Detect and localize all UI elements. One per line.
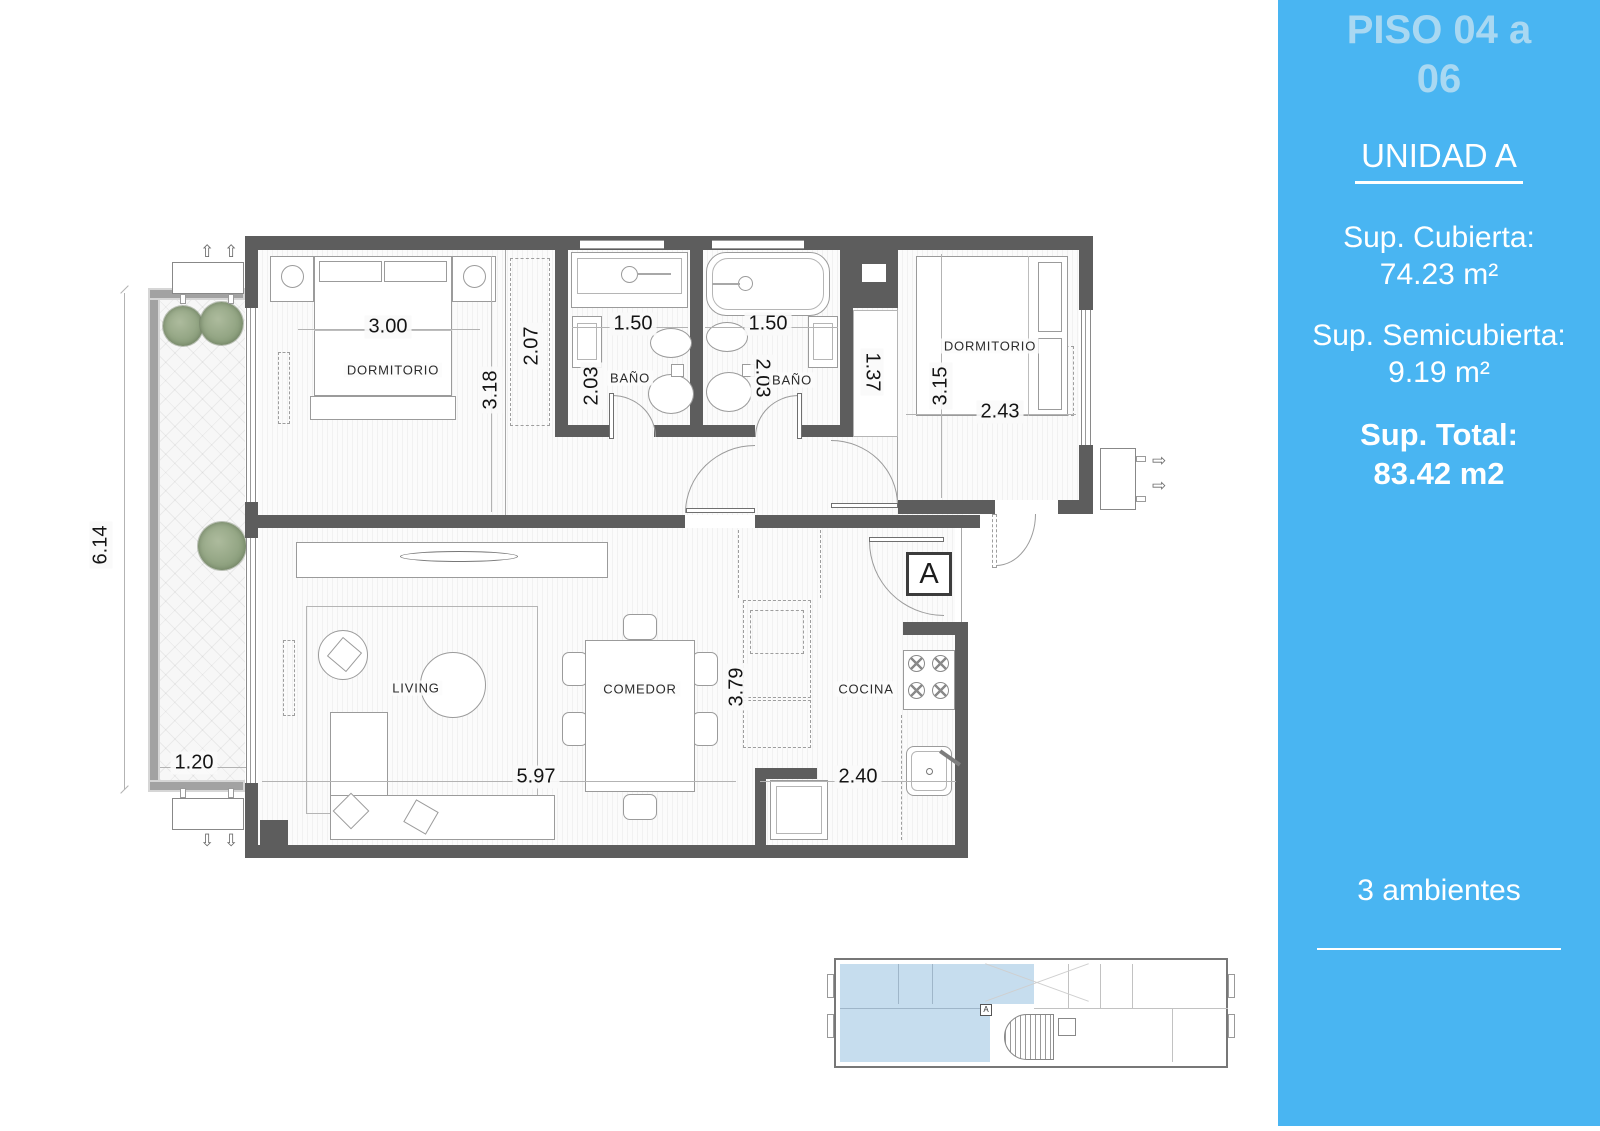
ac-leg	[1136, 456, 1146, 462]
wall-segment	[1079, 250, 1093, 310]
semicovered-surface: Sup. Semicubierta: 9.19 m²	[1278, 317, 1600, 391]
floorplan-sheet: ⇧ ⇧ ⇩ ⇩ ⇨ ⇨ 3.00 3.18 2.07 1.50 2.03 1.5…	[0, 0, 1600, 1131]
airflow-right-icon: ⇨	[1152, 452, 1166, 469]
dimension: 3.15	[930, 363, 953, 410]
shower-head	[621, 266, 638, 283]
window	[712, 240, 804, 249]
ac-leg	[228, 788, 234, 798]
dim-line	[124, 293, 125, 790]
window	[246, 538, 256, 783]
curtain	[283, 640, 295, 716]
keyplan-room-line	[932, 964, 933, 1004]
sidebar-divider	[1317, 948, 1561, 950]
wall-segment	[555, 425, 612, 437]
toilet	[648, 374, 694, 414]
dimension: 2.40	[835, 766, 882, 789]
wall-segment	[703, 425, 755, 437]
bed-footboard	[310, 396, 456, 420]
keyplan-balcony-tab	[827, 1014, 834, 1038]
ac-unit	[172, 262, 244, 294]
wall-segment	[840, 250, 853, 437]
dimension: 1.50	[610, 313, 657, 336]
chair	[623, 794, 657, 820]
key-plan: A	[832, 952, 1234, 1078]
room-label-comedor: COMEDOR	[600, 682, 680, 697]
keyplan-unit-a-highlight	[990, 964, 1034, 1004]
keyplan-elevator	[1058, 1018, 1076, 1036]
cabinet-inner	[750, 610, 804, 654]
burner-icon	[908, 682, 925, 699]
toilet	[706, 372, 752, 412]
covered-surface-value: 74.23 m²	[1278, 256, 1600, 293]
pillow	[1038, 338, 1062, 410]
dimension: 6.14	[90, 522, 113, 569]
blanket-fold	[1028, 256, 1029, 416]
semicovered-surface-label: Sup. Semicubierta:	[1278, 317, 1600, 354]
total-surface-label: Sup. Total:	[1278, 415, 1600, 454]
keyplan-stair	[1004, 1014, 1054, 1060]
airflow-up-icon: ⇧	[200, 243, 214, 260]
hall-edge	[961, 528, 962, 622]
semicovered-surface-value: 9.19 m²	[1278, 354, 1600, 391]
pillow	[319, 261, 382, 282]
closet-partition	[505, 250, 506, 515]
room-label-bano: BAÑO	[607, 371, 653, 386]
ac-leg	[180, 294, 186, 304]
total-surface-value: 83.42 m2	[1278, 454, 1600, 493]
dimension: 2.07	[521, 323, 544, 370]
covered-surface: Sup. Cubierta: 74.23 m²	[1278, 219, 1600, 293]
chair	[692, 712, 718, 746]
wall-segment	[555, 250, 568, 437]
wall-segment	[755, 768, 817, 779]
dimension: 1.37	[861, 349, 884, 396]
keyplan-room-line	[840, 1008, 990, 1009]
wall-segment	[245, 515, 685, 528]
info-sidebar: PISO 04 a 06 UNIDAD A Sup. Cubierta: 74.…	[1278, 0, 1600, 1126]
covered-surface-label: Sup. Cubierta:	[1278, 219, 1600, 256]
dimension: 3.79	[726, 664, 749, 711]
wall-segment	[245, 236, 1093, 250]
airflow-up-icon: ⇧	[224, 243, 238, 260]
keyplan-unit-marker: A	[980, 1004, 992, 1016]
keyplan-room-line	[1132, 964, 1133, 1008]
sink-drain	[926, 768, 933, 775]
keyplan-balcony-tab	[1228, 974, 1235, 998]
wall-segment	[654, 425, 703, 437]
wall-segment	[1058, 500, 1093, 514]
keyplan-balcony-tab	[827, 974, 834, 998]
rooms-count: 3 ambientes	[1278, 872, 1600, 909]
wall-segment	[955, 622, 968, 858]
wall-segment	[245, 845, 968, 858]
curtain	[278, 352, 290, 424]
dimension: 3.00	[365, 316, 412, 339]
room-label-cocina: COCINA	[835, 682, 896, 697]
ac-unit	[1100, 448, 1136, 510]
window	[580, 240, 664, 249]
unit-marker-label: A	[919, 558, 938, 591]
keyplan-room-line	[1172, 1008, 1173, 1062]
sink-basin	[577, 323, 597, 360]
fridge-inner	[776, 786, 822, 834]
room-label-living: LIVING	[389, 681, 442, 696]
plant	[163, 306, 203, 346]
sink-basin	[813, 323, 833, 360]
lamp	[281, 265, 304, 288]
keyplan-room-line	[898, 964, 899, 1004]
dimension: 3.18	[480, 367, 503, 414]
keyplan-balcony-tab	[1228, 1014, 1235, 1038]
pillow	[1038, 262, 1062, 332]
window	[1081, 310, 1091, 445]
door-leaf	[686, 508, 755, 513]
chair	[692, 652, 718, 686]
dimension: 5.97	[513, 766, 560, 789]
burner-icon	[908, 655, 925, 672]
floor-title-line2: 06	[1278, 55, 1600, 104]
sofa	[330, 795, 555, 840]
window	[246, 308, 256, 502]
floor-title: PISO 04 a 06	[1278, 6, 1600, 104]
entry-door-arc	[996, 514, 1036, 566]
ac-leg	[228, 294, 234, 304]
keyplan-room-line	[1100, 964, 1101, 1008]
wall-segment	[898, 500, 995, 514]
burner-icon	[932, 655, 949, 672]
door-leaf	[609, 393, 614, 439]
ac-leg	[1136, 496, 1146, 502]
ac-leg	[180, 788, 186, 798]
plant	[198, 522, 246, 570]
floor-drain	[671, 364, 684, 377]
airflow-down-icon: ⇩	[200, 832, 214, 849]
pillow	[384, 261, 447, 282]
airflow-down-icon: ⇩	[224, 832, 238, 849]
plant	[200, 302, 243, 345]
dimension: 1.20	[171, 752, 218, 775]
room-label-bano: BAÑO	[769, 373, 815, 388]
dim-line	[262, 781, 736, 782]
lamp	[463, 265, 486, 288]
floor-title-line1: PISO 04 a	[1278, 6, 1600, 55]
wall-segment	[260, 820, 288, 845]
duct-shaft-inset	[862, 264, 886, 282]
wall-segment	[755, 779, 766, 845]
door-leaf	[797, 393, 802, 439]
dimension: 2.03	[581, 363, 604, 410]
ac-unit	[172, 798, 244, 830]
room-label-dormitorio: DORMITORIO	[941, 339, 1039, 354]
tv	[400, 551, 518, 562]
door-leaf	[869, 537, 944, 542]
cabinet	[743, 700, 811, 748]
tub-faucet	[738, 276, 753, 291]
total-surface: Sup. Total: 83.42 m2	[1278, 415, 1600, 493]
keyplan-unit-a-highlight	[840, 964, 990, 1062]
keyplan-room-line	[1034, 1008, 1228, 1009]
dining-table	[585, 640, 695, 792]
counter-edge	[901, 715, 902, 840]
entry-door-leaf	[992, 514, 997, 568]
burner-icon	[932, 682, 949, 699]
unit-title: UNIDAD A	[1355, 137, 1523, 184]
balcony-parapet-left	[148, 288, 160, 792]
shower-arm	[637, 273, 671, 275]
opening-line	[738, 530, 739, 598]
wall-segment	[245, 250, 258, 308]
dimension: 2.43	[977, 401, 1024, 424]
wall-segment	[799, 425, 853, 437]
chair	[623, 614, 657, 640]
door-leaf	[831, 503, 898, 508]
opening-line	[820, 530, 821, 598]
dimension: 1.50	[745, 313, 792, 336]
unit-marker-box: A	[906, 552, 952, 596]
airflow-right-icon: ⇨	[1152, 477, 1166, 494]
tub-arm	[712, 283, 740, 285]
wall-segment	[755, 515, 980, 528]
room-label-dormitorio: DORMITORIO	[344, 363, 442, 378]
